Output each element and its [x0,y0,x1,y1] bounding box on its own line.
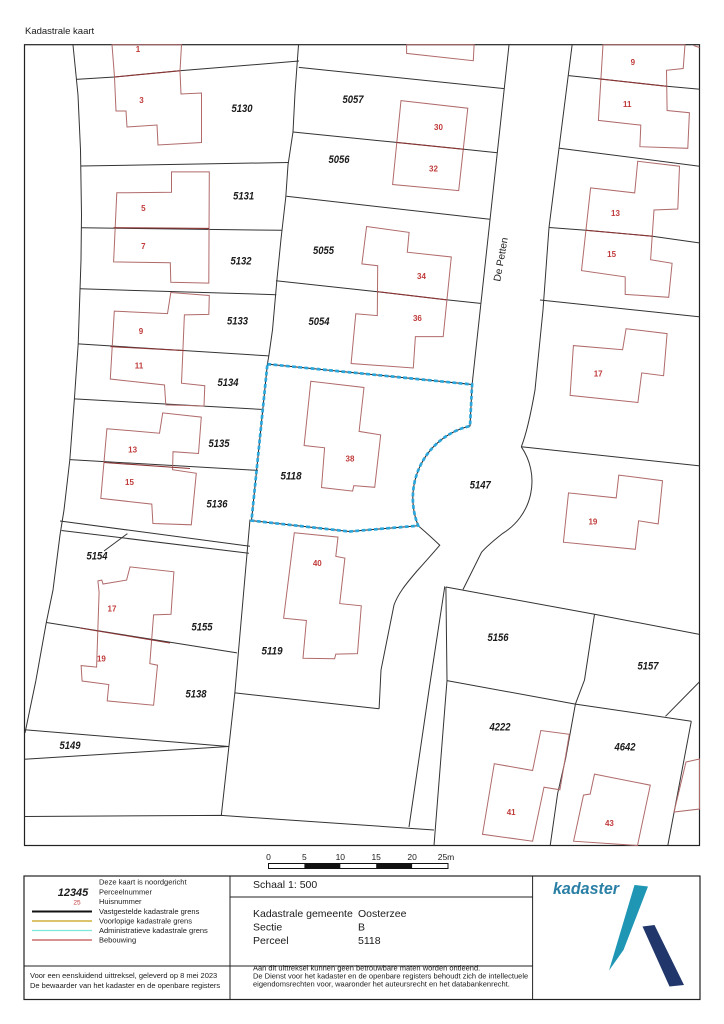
svg-text:15: 15 [125,478,134,487]
svg-text:43: 43 [605,819,614,828]
svg-text:5054: 5054 [309,316,330,328]
svg-text:5133: 5133 [227,316,248,328]
svg-text:5119: 5119 [262,646,284,658]
svg-text:17: 17 [108,605,117,614]
svg-text:13: 13 [611,209,620,218]
svg-text:Schaal 1: 500: Schaal 1: 500 [253,879,317,891]
svg-text:5: 5 [302,852,307,862]
svg-text:15: 15 [371,852,381,862]
svg-text:11: 11 [623,100,632,109]
svg-text:Kadastrale kaart: Kadastrale kaart [25,26,95,37]
svg-text:5131: 5131 [233,191,254,203]
svg-text:17: 17 [594,370,603,379]
svg-text:Vastgestelde kadastrale grens: Vastgestelde kadastrale grens [99,907,200,916]
svg-text:9: 9 [631,58,636,67]
svg-text:Voor een eensluidend uittrekse: Voor een eensluidend uittreksel, gelever… [30,971,217,980]
svg-text:Perceelnummer: Perceelnummer [99,888,152,897]
svg-text:5132: 5132 [231,256,252,268]
svg-text:Administratieve kadastrale gre: Administratieve kadastrale grens [99,926,208,935]
svg-text:5: 5 [141,204,146,213]
svg-text:Huisnummer: Huisnummer [99,897,142,906]
svg-text:20: 20 [407,852,417,862]
svg-text:De Petten: De Petten [492,237,511,283]
svg-text:9: 9 [139,327,144,336]
svg-text:5134: 5134 [218,377,239,389]
svg-text:5118: 5118 [358,935,381,947]
svg-text:11: 11 [135,362,144,371]
svg-text:5057: 5057 [343,94,365,106]
svg-text:4222: 4222 [489,722,511,734]
svg-text:32: 32 [429,165,438,174]
svg-text:30: 30 [434,123,443,132]
svg-text:Bebouwing: Bebouwing [99,936,136,945]
svg-text:kadaster: kadaster [553,879,620,898]
svg-text:5118: 5118 [281,471,303,483]
svg-text:10: 10 [336,852,346,862]
svg-text:5149: 5149 [60,740,82,752]
svg-text:Deze kaart is noordgericht: Deze kaart is noordgericht [99,878,187,887]
svg-text:12345: 12345 [58,887,89,899]
svg-text:36: 36 [413,314,422,323]
svg-text:Sectie: Sectie [253,922,282,934]
svg-text:5147: 5147 [470,480,492,492]
svg-text:34: 34 [417,272,426,281]
svg-text:25m: 25m [438,852,455,862]
svg-text:eigendomsrechten voor, waarond: eigendomsrechten voor, waaronder het aut… [253,980,510,989]
svg-text:15: 15 [607,250,616,259]
svg-text:7: 7 [141,242,146,251]
svg-text:B: B [358,922,365,934]
svg-text:19: 19 [97,655,106,664]
svg-text:5136: 5136 [207,499,229,511]
svg-text:3: 3 [139,96,144,105]
svg-text:Perceel: Perceel [253,935,289,947]
svg-text:13: 13 [128,446,137,455]
svg-text:5157: 5157 [638,661,660,673]
svg-text:5130: 5130 [232,103,254,115]
svg-text:5154: 5154 [87,551,108,563]
svg-text:Voorlopige kadastrale grens: Voorlopige kadastrale grens [99,917,192,926]
svg-text:41: 41 [507,808,516,817]
svg-text:25: 25 [73,900,81,907]
svg-text:1: 1 [136,45,141,54]
svg-text:De bewaarder van het kadaster: De bewaarder van het kadaster en de open… [30,981,220,990]
svg-text:5156: 5156 [488,632,510,644]
svg-text:Oosterzee: Oosterzee [358,908,407,920]
svg-text:4642: 4642 [614,742,636,754]
svg-text:5138: 5138 [186,689,208,701]
svg-text:Kadastrale gemeente: Kadastrale gemeente [253,908,353,920]
svg-text:19: 19 [588,518,597,527]
svg-text:38: 38 [346,455,355,464]
svg-text:5155: 5155 [192,622,214,634]
svg-text:40: 40 [313,559,322,568]
svg-text:0: 0 [266,852,271,862]
svg-text:5135: 5135 [209,438,231,450]
svg-text:5056: 5056 [329,154,351,166]
svg-text:5055: 5055 [313,245,335,257]
